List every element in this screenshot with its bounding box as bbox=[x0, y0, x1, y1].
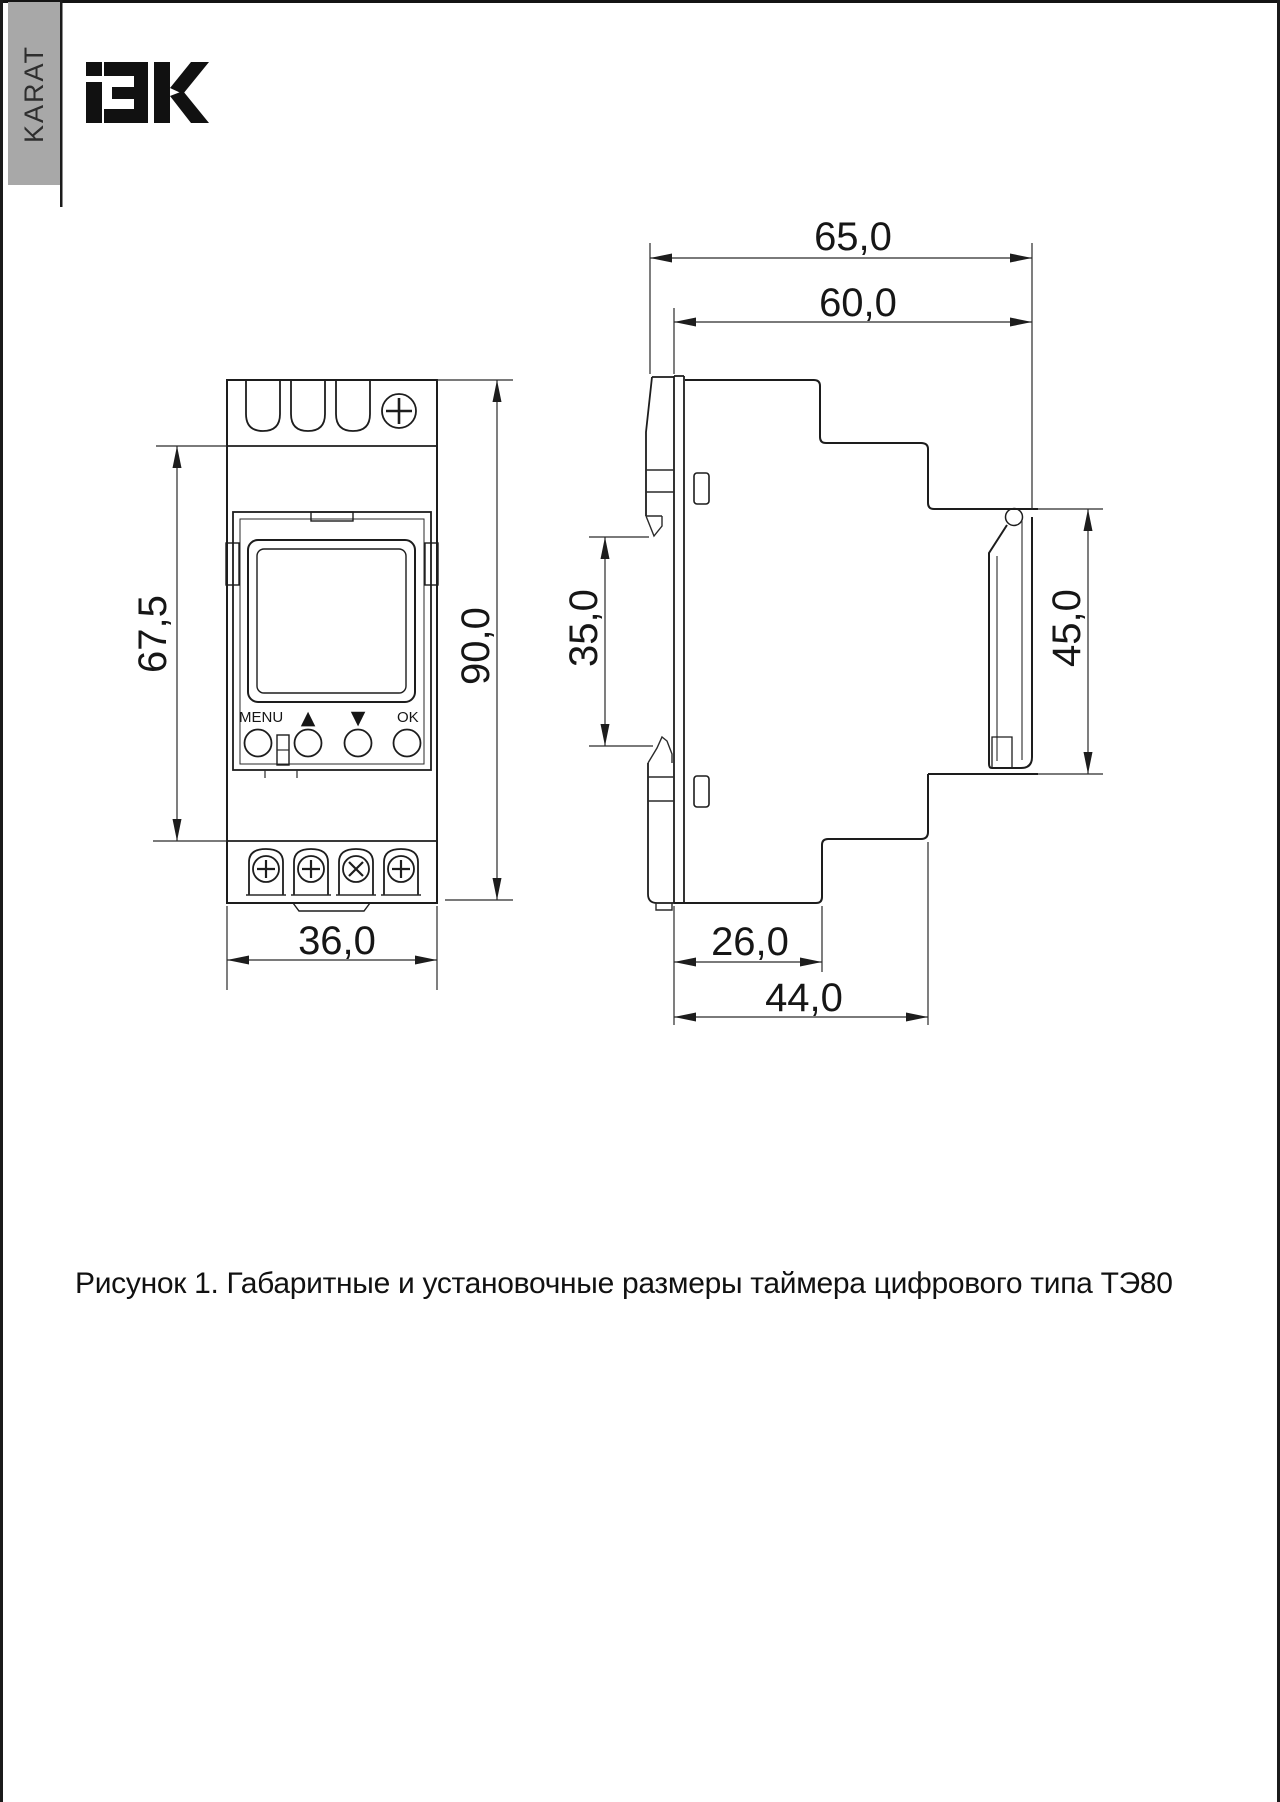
arrow-right-icon bbox=[800, 958, 822, 967]
dim-front-height: 45,0 bbox=[1038, 509, 1103, 774]
top-terminal-slot bbox=[291, 381, 325, 431]
down-arrow-label: ▼ bbox=[351, 707, 366, 729]
logo-k-upper-arm bbox=[170, 62, 209, 94]
arrow-right-icon bbox=[1010, 318, 1032, 327]
din-clip-foot bbox=[656, 903, 672, 910]
down-button bbox=[345, 730, 372, 757]
cover-latch bbox=[992, 737, 1012, 767]
front-panel-inner-frame bbox=[240, 519, 424, 764]
din-clip-top-band bbox=[646, 470, 674, 492]
screw-cross-icon bbox=[302, 860, 320, 878]
side-top-profile bbox=[685, 380, 1038, 509]
up-button bbox=[295, 730, 322, 757]
dim-label: 90,0 bbox=[454, 607, 498, 685]
logo-k-lower-arm bbox=[170, 91, 209, 123]
logo-k-stem bbox=[154, 62, 170, 123]
dim-label: 44,0 bbox=[765, 976, 843, 1020]
dim-label: 60,0 bbox=[819, 281, 897, 325]
front-cover-outline bbox=[989, 517, 1032, 768]
top-terminal-slot bbox=[246, 381, 280, 431]
logo-e-mid bbox=[112, 87, 148, 99]
housing-slot-bottom bbox=[694, 776, 709, 807]
screw-cross-rotated-icon bbox=[349, 862, 363, 876]
arrow-left-icon bbox=[674, 958, 696, 967]
dim-body-width: 60,0 bbox=[674, 281, 1032, 374]
ok-button-label: OK bbox=[397, 709, 419, 726]
logo-e-bottom bbox=[104, 109, 148, 123]
dim-width: 36,0 bbox=[227, 906, 437, 990]
arrow-up-icon bbox=[1084, 509, 1093, 531]
rear-plate bbox=[674, 376, 684, 903]
arrow-up-icon bbox=[601, 537, 610, 559]
figure-drawing: KARAT MENU ▲ ▼ OK bbox=[0, 0, 1280, 1802]
cover-hinge bbox=[1006, 509, 1023, 526]
sidebar-divider bbox=[60, 0, 63, 207]
dim-total-width: 65,0 bbox=[650, 215, 1032, 510]
din-clip-bottom bbox=[648, 763, 674, 903]
front-view: MENU ▲ ▼ OK bbox=[226, 380, 438, 911]
arrow-left-icon bbox=[650, 254, 672, 263]
arrow-up-icon bbox=[493, 380, 502, 402]
housing-slot-top bbox=[694, 473, 709, 504]
arrow-down-icon bbox=[601, 724, 610, 746]
dim-din-gap: 35,0 bbox=[562, 537, 653, 746]
arrow-right-icon bbox=[1010, 254, 1032, 263]
lcd-screen bbox=[257, 549, 406, 693]
document-page: KARAT MENU ▲ ▼ OK bbox=[0, 0, 1280, 1802]
menu-button-label: MENU bbox=[239, 709, 283, 726]
arrow-up-icon bbox=[173, 446, 182, 468]
din-clip-top-tip bbox=[646, 516, 662, 536]
dim-label: 45,0 bbox=[1045, 589, 1089, 667]
dim-label: 35,0 bbox=[562, 589, 606, 667]
dim-total-height: 90,0 bbox=[437, 380, 513, 900]
screw-cross-icon bbox=[392, 860, 410, 878]
logo-i-dot bbox=[86, 62, 102, 76]
arrow-down-icon bbox=[1084, 752, 1093, 774]
din-clip-top bbox=[646, 377, 674, 516]
side-bottom-profile bbox=[674, 774, 928, 903]
menu-button bbox=[245, 730, 272, 757]
front-cover-inner-lines bbox=[997, 521, 1022, 761]
arrow-down-icon bbox=[493, 878, 502, 900]
dim-label: 67,5 bbox=[131, 595, 175, 673]
screw-cross-icon bbox=[386, 398, 412, 424]
panel-top-tab bbox=[311, 512, 353, 521]
dim-label: 65,0 bbox=[814, 215, 892, 259]
din-clip-bottom-bump bbox=[648, 737, 672, 763]
side-view bbox=[646, 376, 1038, 910]
arrow-left-icon bbox=[674, 1013, 696, 1022]
ok-button bbox=[394, 730, 421, 757]
logo-i-stem bbox=[86, 82, 102, 123]
arrow-left-icon bbox=[227, 956, 249, 965]
dim-label: 36,0 bbox=[298, 919, 376, 963]
figure-caption: Рисунок 1. Габаритные и установочные раз… bbox=[75, 1267, 1173, 1300]
din-clip-bottom-band bbox=[648, 777, 674, 801]
bottom-center-notch bbox=[293, 903, 370, 911]
arrow-down-icon bbox=[173, 819, 182, 841]
arrow-right-icon bbox=[906, 1013, 928, 1022]
karat-label: KARAT bbox=[19, 45, 49, 143]
page-top-border bbox=[0, 0, 1280, 3]
screw-cross-icon bbox=[257, 860, 275, 878]
iek-logo bbox=[86, 62, 209, 123]
arrow-left-icon bbox=[674, 318, 696, 327]
arrow-right-icon bbox=[415, 956, 437, 965]
panel-bottom-ticks bbox=[265, 770, 297, 778]
page-left-border bbox=[0, 0, 3, 1802]
dim-upper-height: 67,5 bbox=[131, 446, 227, 841]
lcd-screen-outline bbox=[248, 540, 415, 702]
top-terminal-slot bbox=[336, 381, 370, 431]
up-arrow-label: ▲ bbox=[301, 707, 316, 729]
dim-label: 26,0 bbox=[711, 920, 789, 964]
